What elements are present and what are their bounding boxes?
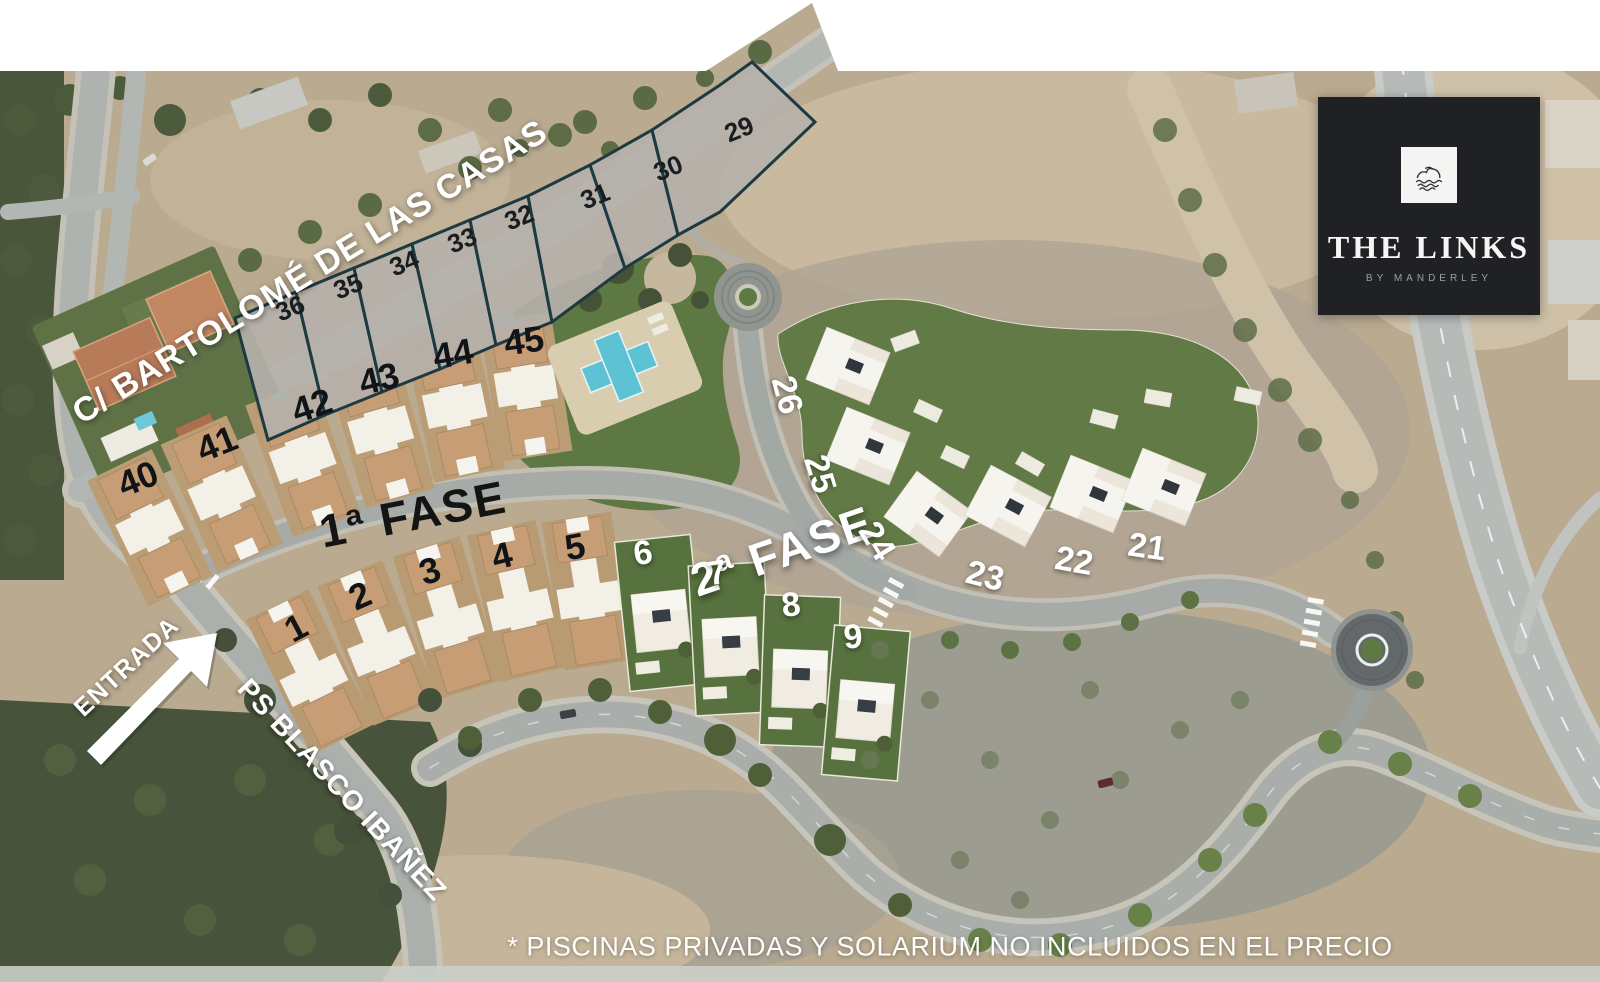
plot-number-8: 8	[780, 587, 802, 623]
photo-bottom-margin	[0, 966, 1600, 982]
plot-number-22: 22	[1052, 541, 1095, 581]
roundabout-top	[714, 263, 782, 331]
plot-number-44: 44	[430, 333, 476, 375]
plot-number-23: 23	[963, 555, 1008, 597]
roundabout-right	[1331, 609, 1413, 691]
plot-number-9: 9	[842, 619, 863, 654]
plot-number-43: 43	[355, 357, 403, 402]
plot-number-45: 45	[502, 320, 547, 361]
brand-subtitle: BY MANDERLEY	[1366, 273, 1492, 284]
plot-number-21: 21	[1126, 528, 1168, 567]
brand-logo: THE LINKS BY MANDERLEY	[1318, 97, 1540, 315]
disclaimer-note: * PISCINAS PRIVADAS Y SOLARIUM NO INCLUI…	[507, 934, 1392, 961]
brand-title: THE LINKS	[1328, 229, 1530, 266]
site-plan: C/ BARTOLOMÉ DE LAS CASAS PS BLASCO IBAÑ…	[0, 0, 1600, 982]
links-logo-icon	[1401, 147, 1457, 203]
